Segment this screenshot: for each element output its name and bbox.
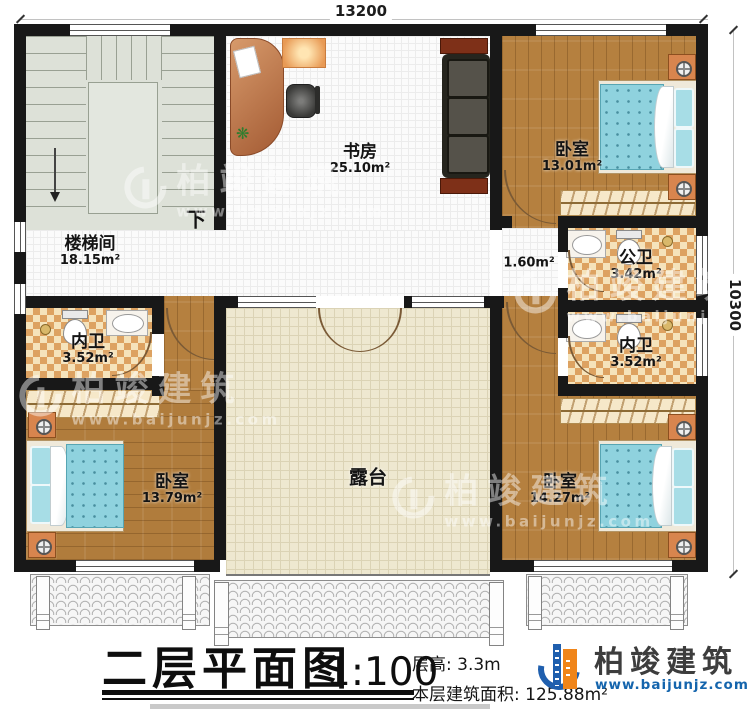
stairs-right-flight [162,36,214,222]
nightstand-knob-icon [676,539,692,555]
brand-logo-icon [538,640,590,696]
nightstand [28,412,56,438]
brand-name: 柏竣建筑 [594,648,738,678]
window [412,296,484,308]
window [14,222,26,252]
room-area: 3.42m² [610,268,661,283]
floor-drain-icon [40,324,51,335]
office-chair [286,84,316,118]
dimension-top-value: 13200 [330,2,392,20]
porch-column [528,576,542,630]
nightstand-knob-icon [676,181,692,197]
bed-blanket [654,86,674,168]
room-area: 25.10m² [330,162,390,177]
nightstand [668,174,696,200]
bed-pillow [672,486,694,526]
sofa-cushion [447,59,489,98]
nightstand-knob-icon [676,421,692,437]
nightstand-knob-icon [676,61,692,77]
wall [214,296,238,308]
nightstand [28,532,56,558]
porch-column [182,576,196,630]
sofa-cushion [447,97,489,136]
wall [14,296,164,308]
window [536,24,666,36]
wall [558,216,696,228]
room-name: 卧室 [142,473,202,492]
room-name: 卧室 [542,141,602,160]
room-name: 露台 [349,467,387,488]
room-name: 内卫 [610,337,661,356]
room-label-bedroom-bottom-left: 卧室 13.79m² [142,473,202,507]
sink-basin-icon [112,314,144,333]
floor-height-label: 层高: [412,655,452,675]
wall [558,228,568,252]
plant-icon: ❋ [236,126,249,142]
window [14,284,26,314]
room-name: 内卫 [62,333,113,352]
window [534,560,672,572]
bed-pillow [30,484,52,524]
room-name: 楼梯间 [60,235,120,254]
floor-height-info: 层高: 3.3m [412,650,501,675]
stairs-direction-line [54,148,56,192]
dimension-right-value: 10300 [726,274,744,336]
toilet-tank [616,230,642,239]
page-title: 二层平面图 [102,646,352,691]
brand-logo-building-orange [563,649,577,689]
floor-area-label: 本层建筑面积: [412,685,520,705]
toilet-tank [62,310,88,319]
wall [558,288,568,338]
title-underline [102,690,414,695]
bed-pillow [30,446,52,486]
wall [490,24,502,230]
stairs-down-arrow-icon [50,192,60,202]
room-label-bedroom-top-right: 卧室 13.01m² [542,141,602,175]
desk-return-lamp [282,38,326,68]
floor-plan-canvas: ❋ [0,0,750,709]
floor-height-value: 3.3m [457,655,501,675]
wall [214,24,226,230]
room-area: 1.60m² [503,257,554,272]
wall [558,376,568,396]
nightstand [668,54,696,80]
bed-mattress [66,444,124,528]
stairs-top-flight [86,36,162,80]
sofa-cushion [447,135,489,174]
stairs-center-landing [88,82,158,214]
wall [26,378,164,390]
room-name: 书房 [330,143,390,162]
room-label-ensuite-left: 内卫 3.52m² [62,333,113,367]
room-label-terrace: 露台 [349,467,387,488]
floor-drain-icon [662,320,673,331]
bed-blanket [652,446,672,526]
dimension-tick [729,569,738,578]
brand-logo-building-blue [553,644,561,686]
wall [152,308,164,334]
room-area: 13.01m² [542,160,602,175]
nightstand-knob-icon [36,539,52,555]
wall [558,300,696,312]
bed-pillow [672,448,694,488]
nightstand [668,532,696,558]
wall [502,216,512,228]
room-label-vestibule: 1.60m² [503,257,554,272]
room-name: 卧室 [530,473,590,492]
nightstand [668,414,696,440]
sofa-side-table-top [440,38,488,54]
window [70,24,170,36]
window [238,296,316,308]
stairs-down-label: 下 [186,204,206,233]
window [76,560,194,572]
room-label-bedroom-bottom-right: 卧室 14.27m² [530,473,590,507]
wall [214,308,226,560]
room-label-ensuite-right: 内卫 3.52m² [610,337,661,371]
nightstand-knob-icon [36,419,52,435]
room-area: 3.52m² [62,352,113,367]
window [696,236,708,294]
room-area: 18.15m² [60,254,120,269]
room-label-public-bath: 公卫 3.42m² [610,249,661,283]
toilet-tank [616,314,642,323]
eave-roof-right [526,574,688,626]
title-underline-thin [102,698,414,700]
porch-column [36,576,50,630]
room-area: 3.52m² [610,356,661,371]
room-area: 14.27m² [530,492,590,507]
window [696,318,708,376]
office-chair-backrest [315,86,320,114]
bed-pillow [674,128,694,168]
bed-pillow [674,88,694,128]
room-label-stairwell: 楼梯间 18.15m² [60,235,120,269]
eave-roof-center [214,580,504,638]
floor-drain-icon [662,236,673,247]
room-label-study: 书房 25.10m² [330,143,390,177]
brand-url: www.baijunjz.com [595,679,749,693]
room-area: 13.79m² [142,492,202,507]
porch-column [489,582,504,646]
sofa-side-table-bottom [440,178,488,194]
room-name: 公卫 [610,249,661,268]
wall [696,24,708,572]
porch-column [670,576,684,630]
wall [490,300,502,572]
wall [404,296,412,308]
wall [558,384,696,396]
porch-column [214,582,229,646]
